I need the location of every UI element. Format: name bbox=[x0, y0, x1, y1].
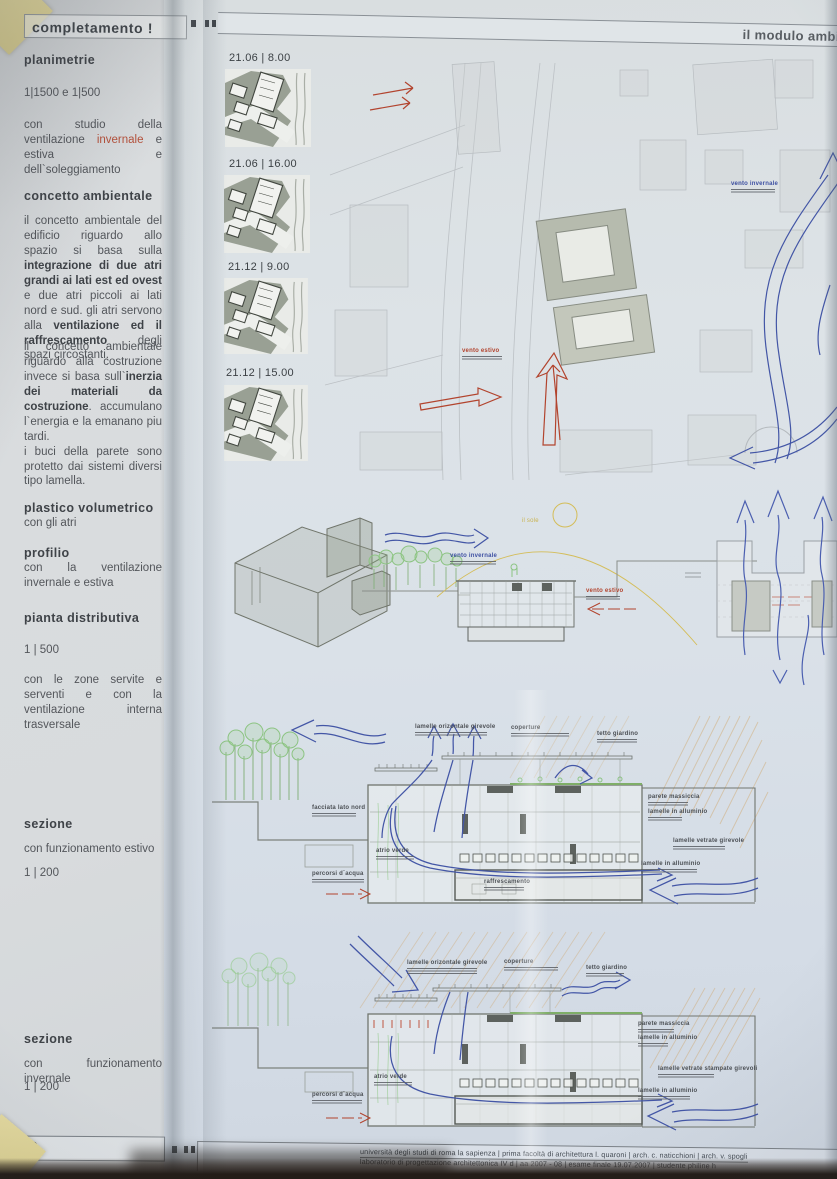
annotation-sublines bbox=[415, 732, 487, 737]
thumb-3-time: 21.12 | 9.00 bbox=[228, 261, 290, 273]
body-bold: integrazione di due atri grandi ai lati … bbox=[24, 260, 162, 287]
note-accent: invernale bbox=[97, 134, 144, 146]
annotation-sublines bbox=[638, 1096, 690, 1101]
equal-mark bbox=[685, 573, 701, 577]
project-site bbox=[536, 208, 654, 366]
hatch-right bbox=[650, 716, 768, 848]
profile-summer-wind-label: vento estivo bbox=[586, 588, 623, 594]
heading-sezione-1: sezione bbox=[24, 816, 162, 832]
label-text: percorsi d`acqua bbox=[312, 871, 364, 877]
label-text: lamelle in alluminio bbox=[638, 1035, 697, 1041]
body-text: i buci della parete sono protetto dai si… bbox=[24, 446, 162, 488]
label-text: facciata lato nord bbox=[312, 805, 365, 811]
sec2-label-tetto-giardino: tetto giardino bbox=[586, 965, 627, 978]
heading-pianta: pianta distributiva bbox=[24, 610, 162, 626]
annotation-sublines bbox=[638, 1043, 668, 1048]
section-plastico: plastico volumetrico con gli atri bbox=[24, 500, 162, 531]
section-concetto: concetto ambientale bbox=[24, 188, 162, 204]
annotation-sublines bbox=[312, 1100, 362, 1105]
sezione-1-scale: 1 | 200 bbox=[24, 866, 162, 881]
annotation-sublines bbox=[312, 879, 364, 884]
heading-planimetrie: planimetrie bbox=[24, 52, 162, 68]
profile-winter-wind-label: vento invernale bbox=[450, 553, 497, 559]
body-text: il concetto ambientale del edificio rigu… bbox=[24, 215, 162, 257]
distribution-plan bbox=[717, 491, 837, 685]
sezione-1-sub: con funzionamento estivo bbox=[24, 842, 162, 857]
label-text: lamelle orizontale girevole bbox=[415, 724, 495, 730]
annotation-sublines bbox=[450, 561, 496, 566]
label-text: atrio verde bbox=[374, 1074, 407, 1080]
profile-section bbox=[456, 564, 576, 641]
sec1-label-lamelle-alluminio-2: lamelle in alluminio bbox=[641, 861, 700, 874]
water-basin bbox=[305, 1072, 353, 1092]
sec1-label-lamelle-alluminio-1: lamelle in alluminio bbox=[648, 809, 707, 822]
plan-winter-wind-label: vento invernale bbox=[731, 181, 778, 187]
sec2-label-lamelle-top: lamelle orizontale girevole bbox=[407, 960, 487, 975]
terrain bbox=[212, 1028, 368, 1068]
thumb-2-time: 21.06 | 16.00 bbox=[229, 158, 297, 170]
section-profilio: profilio con la ventilazione invernale e… bbox=[24, 545, 162, 591]
label-text: lamelle vetrate girevole bbox=[673, 838, 744, 844]
annotation-sublines bbox=[673, 846, 725, 851]
thumb-1-map bbox=[225, 69, 311, 147]
plastico-sub: con gli atri bbox=[24, 516, 162, 531]
plan-winter-wind-group: vento invernale bbox=[731, 181, 778, 194]
sec2-label-lamelle-vetrate: lamelle vetrate stampate girevoli bbox=[658, 1066, 757, 1079]
poster-photo: completamento ! il modulo ambien planime… bbox=[0, 0, 837, 1179]
label-text: parete massiccia bbox=[638, 1021, 690, 1027]
sezione-2-scale: 1 | 200 bbox=[24, 1080, 162, 1095]
heading-profilio: profilio bbox=[24, 545, 162, 561]
annotation-sublines bbox=[648, 802, 688, 807]
label-text: lamelle vetrate stampate girevoli bbox=[658, 1066, 757, 1072]
water-path-arrow bbox=[326, 889, 370, 899]
sec2-label-parete: parete massiccia bbox=[638, 1021, 690, 1034]
thumb-3-map bbox=[222, 278, 310, 354]
pianta-scale: 1 | 500 bbox=[24, 643, 162, 658]
annotation-sublines bbox=[731, 189, 775, 194]
poster-right-edge bbox=[824, 0, 837, 1179]
body-text: con le zone servite e serventi e con la … bbox=[24, 673, 162, 733]
thumb-2-map bbox=[224, 175, 310, 253]
annotation-sublines bbox=[586, 973, 624, 978]
annotation-sublines bbox=[376, 856, 414, 861]
planimetrie-note: con studio della ventilazione invernale … bbox=[24, 118, 162, 178]
planimetrie-scale: 1|1500 e 1|500 bbox=[24, 86, 162, 101]
annotation-sublines bbox=[462, 356, 502, 361]
sec1-label-lamelle-top: lamelle orizontale girevole bbox=[415, 724, 495, 737]
label-text: tetto giardino bbox=[586, 965, 627, 971]
profile-summer-wind-group: vento estivo bbox=[586, 588, 623, 601]
annotation-sublines bbox=[586, 596, 620, 601]
label-text: percorsi d`acqua bbox=[312, 1092, 364, 1098]
scale-text: 1|1500 e 1|500 bbox=[24, 87, 100, 99]
concetto-paragraph-2: il concetto ambientale riguardo alla cos… bbox=[24, 340, 162, 489]
volume-model bbox=[235, 518, 390, 647]
annotation-sublines bbox=[312, 813, 356, 818]
section-pianta: pianta distributiva bbox=[24, 610, 162, 626]
section-planimetrie: planimetrie bbox=[24, 52, 162, 68]
sec2-label-atrio-verde: atrio verde bbox=[374, 1074, 412, 1087]
plan-summer-wind-group: vento estivo bbox=[462, 348, 502, 361]
annotation-sublines bbox=[641, 869, 697, 874]
sheet-crease bbox=[203, 0, 227, 1179]
sec2-label-lamelle-alluminio-1: lamelle in alluminio bbox=[638, 1035, 697, 1048]
profilio-sub: con la ventilazione invernale e estiva bbox=[24, 561, 162, 591]
heading-plastico: plastico volumetrico bbox=[24, 500, 162, 516]
sheet-gap-shadow bbox=[160, 0, 206, 1179]
pianta-sub: con le zone servite e serventi e con la … bbox=[24, 673, 162, 733]
trees bbox=[220, 723, 304, 800]
scale-text: 1 | 200 bbox=[24, 866, 162, 881]
heading-concetto: concetto ambientale bbox=[24, 188, 162, 204]
label-text: lamelle in alluminio bbox=[638, 1088, 697, 1094]
title-band: il modulo ambien bbox=[218, 12, 837, 47]
label-text: lamelle in alluminio bbox=[641, 861, 700, 867]
thumb-1-time: 21.06 | 8.00 bbox=[229, 52, 291, 64]
section-sezione-estivo: sezione bbox=[24, 816, 162, 832]
sec1-label-parete: parete massiccia bbox=[648, 794, 700, 807]
sec1-label-percorsi-acqua: percorsi d`acqua bbox=[312, 871, 364, 884]
annotation-sublines bbox=[658, 1074, 714, 1079]
site-plan-drawing bbox=[315, 55, 837, 485]
sec1-label-atrio-verde: atrio verde bbox=[376, 848, 414, 861]
water-basin bbox=[305, 845, 353, 867]
sun-label: il sole bbox=[522, 518, 539, 524]
thumb-4-time: 21.12 | 15.00 bbox=[226, 367, 294, 379]
section-winter-drawing bbox=[210, 928, 780, 1140]
label-text: lamelle in alluminio bbox=[648, 809, 707, 815]
scale-text: 1 | 200 bbox=[24, 1080, 162, 1095]
annotation-sublines bbox=[597, 739, 637, 744]
annotation-sublines bbox=[638, 1029, 674, 1034]
plan-summer-wind-label: vento estivo bbox=[462, 348, 499, 354]
sec2-label-lamelle-alluminio-2: lamelle in alluminio bbox=[638, 1088, 697, 1101]
annotation-sublines bbox=[407, 968, 477, 975]
label-text: lamelle orizontale girevole bbox=[407, 960, 487, 966]
trees bbox=[222, 953, 295, 1026]
label-text: tetto giardino bbox=[597, 731, 638, 737]
label-text: atrio verde bbox=[376, 848, 409, 854]
annotation-sublines bbox=[648, 817, 682, 822]
section-sezione-invernale: sezione bbox=[24, 1031, 162, 1047]
profile-winter-wind-group: vento invernale bbox=[450, 553, 497, 566]
sec1-label-facciata: facciata lato nord bbox=[312, 805, 365, 818]
page-title: il modulo ambien bbox=[742, 27, 837, 44]
sec1-label-tetto-giardino: tetto giardino bbox=[597, 731, 638, 744]
water-path-arrow bbox=[326, 1113, 370, 1123]
sec1-label-lamelle-vetrate: lamelle vetrate girevole bbox=[673, 838, 744, 851]
tab-label: completamento ! bbox=[32, 19, 153, 36]
label-text: parete massiccia bbox=[648, 794, 700, 800]
annotation-sublines bbox=[374, 1082, 412, 1087]
winter-wind-arrow bbox=[385, 529, 488, 548]
heading-sezione-2: sezione bbox=[24, 1031, 162, 1047]
table-edge bbox=[0, 1158, 837, 1179]
scale-text: 1 | 500 bbox=[24, 644, 59, 656]
thumb-4-map bbox=[222, 385, 310, 461]
body-text: con funzionamento estivo bbox=[24, 842, 162, 857]
sec2-label-percorsi-acqua: percorsi d`acqua bbox=[312, 1092, 364, 1105]
paper-fold-highlight bbox=[514, 690, 548, 1179]
